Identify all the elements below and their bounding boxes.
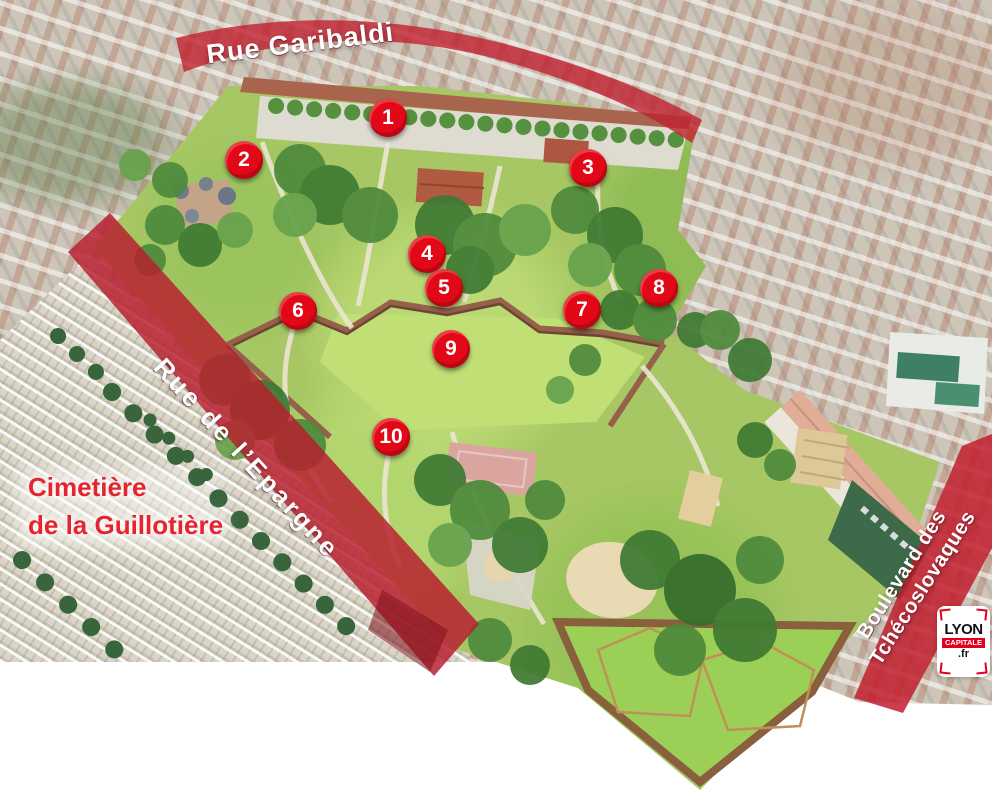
map-marker-9: 9 — [432, 330, 470, 368]
map-marker-7: 7 — [563, 291, 601, 329]
logo-corner-bracket-icon — [939, 662, 951, 674]
road-band-rue-de-lepargne — [68, 213, 479, 676]
map-marker-4: 4 — [408, 235, 446, 273]
map-marker-10: 10 — [372, 418, 410, 456]
map-marker-1: 1 — [369, 99, 407, 137]
road-bands — [0, 0, 992, 805]
cemetery-label-line2: de la Guillotière — [28, 506, 223, 544]
logo-corner-bracket-icon — [975, 662, 987, 674]
map-marker-3: 3 — [569, 149, 607, 187]
cemetery-label-line1: Cimetière — [28, 468, 223, 506]
lyon-capitale-logo: LYON CAPITALE .fr — [937, 606, 990, 677]
logo-corner-bracket-icon — [975, 608, 987, 620]
map-marker-2: 2 — [225, 141, 263, 179]
logo-text-fr: .fr — [958, 649, 969, 660]
cemetery-label: Cimetière de la Guillotière — [28, 468, 223, 544]
logo-text-lyon: LYON — [944, 623, 982, 637]
map-marker-6: 6 — [279, 292, 317, 330]
map-marker-5: 5 — [425, 269, 463, 307]
annotated-aerial-map: Rue Garibaldi Rue de l’Epargne Boulevard… — [0, 0, 992, 805]
map-marker-8: 8 — [640, 269, 678, 307]
logo-text-capitale: CAPITALE — [942, 638, 985, 648]
logo-corner-bracket-icon — [939, 608, 951, 620]
